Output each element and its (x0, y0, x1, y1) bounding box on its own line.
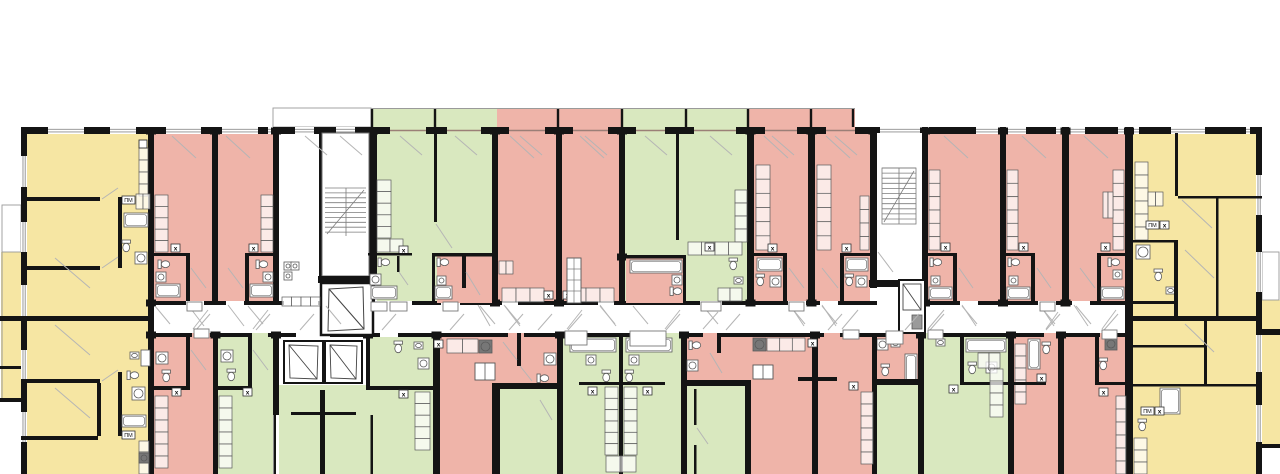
svg-text:x: x (708, 244, 712, 251)
svg-text:x: x (1104, 244, 1108, 251)
svg-text:ПМ: ПМ (1143, 409, 1152, 415)
svg-text:x: x (1040, 375, 1044, 382)
svg-text:ПМ: ПМ (124, 198, 133, 204)
svg-text:x: x (1158, 408, 1162, 415)
svg-text:x: x (175, 389, 179, 396)
svg-text:x: x (944, 244, 948, 251)
svg-text:x: x (437, 341, 441, 348)
svg-text:x: x (174, 245, 178, 252)
svg-text:x: x (252, 245, 256, 252)
svg-text:ПМ: ПМ (124, 433, 133, 439)
svg-text:x: x (246, 389, 250, 396)
svg-text:ПМ: ПМ (1148, 223, 1157, 229)
svg-text:x: x (852, 383, 856, 390)
svg-text:x: x (771, 245, 775, 252)
svg-text:x: x (811, 340, 815, 347)
svg-text:x: x (646, 388, 650, 395)
svg-text:x: x (1163, 222, 1167, 229)
svg-text:x: x (547, 292, 551, 299)
svg-text:x: x (952, 386, 956, 393)
svg-text:x: x (1102, 389, 1106, 396)
svg-text:x: x (1022, 244, 1026, 251)
svg-text:x: x (402, 391, 406, 398)
svg-text:x: x (845, 245, 849, 252)
svg-text:x: x (591, 388, 595, 395)
